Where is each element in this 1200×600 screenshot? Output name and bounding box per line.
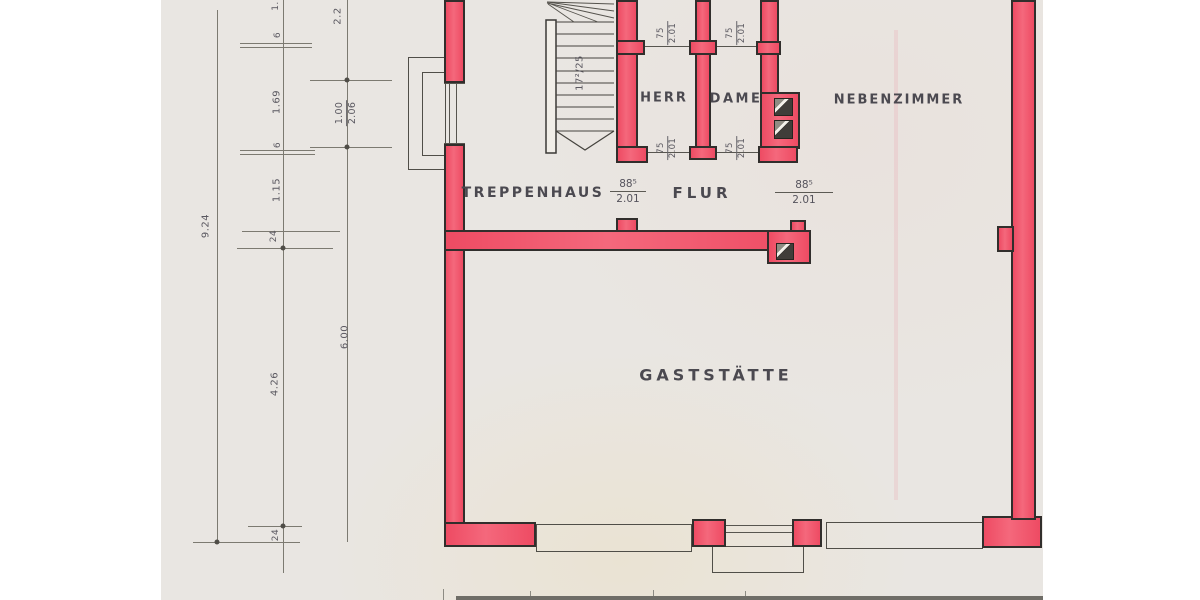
wall-right bbox=[1011, 0, 1036, 520]
dim-dot-c-147 bbox=[345, 145, 350, 150]
entrance-porch-step bbox=[712, 546, 804, 573]
bottom-dim-tick-1 bbox=[443, 589, 444, 600]
wall-stairwell-jamb-top bbox=[616, 40, 645, 55]
dim-b-top-cut: 1. bbox=[271, 1, 281, 11]
wall-herr-dame-jamb-bottom bbox=[689, 146, 717, 160]
door-dim-num: 75 bbox=[726, 27, 736, 38]
room-label-dame: DAME bbox=[710, 92, 763, 107]
dim-dot-b-248 bbox=[281, 246, 286, 251]
dim-tick-a-bottom bbox=[193, 542, 300, 543]
door-dim-75-4: 75 2.01 bbox=[726, 136, 748, 160]
dim-seg-115: 1.15 bbox=[272, 178, 283, 202]
flue-square-1 bbox=[774, 98, 793, 116]
dim-seg-6a: 6 bbox=[273, 32, 283, 38]
door-line-herr-top bbox=[645, 46, 689, 47]
entrance-threshold-line2 bbox=[726, 532, 792, 533]
corridor-door-jamb-1 bbox=[616, 218, 638, 232]
dim-tick-c1 bbox=[310, 80, 392, 81]
dim-seg-24a: 24 bbox=[269, 230, 279, 242]
window-left-cap-top bbox=[444, 83, 465, 84]
wall-dame-neben-jamb-top bbox=[756, 41, 781, 55]
floor-plan-scan: 17²/25 TREPPENHAUS FLUR HERR DAME NEBENZ… bbox=[0, 0, 1200, 600]
room-label-herr: HERR bbox=[640, 91, 688, 106]
window-left-sill-inner bbox=[422, 72, 446, 156]
dim-seg-24b: 24 bbox=[271, 529, 281, 541]
flue-square-2 bbox=[774, 120, 793, 139]
door-dim-75-3: 75 2.01 bbox=[657, 136, 679, 160]
scan-margin-left bbox=[0, 0, 161, 600]
dim-seg-600: 6.00 bbox=[340, 325, 351, 349]
door-dim-num: 88⁵ bbox=[775, 179, 833, 192]
dim-tick-b4 bbox=[248, 526, 302, 527]
wall-corridor bbox=[444, 230, 806, 251]
door-dim-den: 2.01 bbox=[736, 21, 748, 45]
dim-line-b bbox=[283, 0, 284, 573]
door-dim-885-1: 88⁵ 2.01 bbox=[610, 178, 646, 205]
dim-dot-a-542 bbox=[215, 540, 220, 545]
door-dim-75-2: 75 2.01 bbox=[726, 21, 748, 45]
door-dim-num: 75 bbox=[657, 27, 667, 38]
dim-c-top: 2.2 bbox=[333, 7, 344, 24]
door-dim-den: 2.01 bbox=[736, 136, 748, 160]
dim-tick-b2b bbox=[240, 154, 315, 155]
dim-dot-b-526 bbox=[281, 524, 286, 529]
door-dim-den: 2.01 bbox=[667, 136, 679, 160]
wall-bottom-pier-2 bbox=[792, 519, 822, 547]
wall-right-interior-pier bbox=[997, 226, 1014, 252]
dim-tick-b3a bbox=[242, 231, 340, 232]
scan-margin-right bbox=[1043, 0, 1200, 600]
door-dim-num: 88⁵ bbox=[610, 178, 646, 191]
wall-herr-dame bbox=[695, 0, 711, 159]
door-line-dame-top bbox=[717, 46, 756, 47]
dim-tick-b2a bbox=[240, 150, 315, 151]
wall-herr-dame-jamb-top bbox=[689, 40, 717, 55]
dim-window-fraction: 1.00 2.06 bbox=[335, 100, 359, 126]
scan-edge-band bbox=[456, 596, 1044, 600]
wall-left-upper bbox=[444, 0, 465, 83]
window-bottom-2 bbox=[826, 522, 983, 549]
door-dim-num: 75 bbox=[726, 142, 736, 153]
room-label-flur: FLUR bbox=[672, 184, 731, 202]
stair-direction-arrow bbox=[556, 131, 614, 150]
window-left-frame-line bbox=[449, 83, 450, 144]
dim-tick-b1b bbox=[240, 47, 312, 48]
room-label-nebenzimmer: NEBENZIMMER bbox=[834, 93, 964, 108]
dim-tick-b1a bbox=[240, 43, 312, 44]
door-dim-885-2: 88⁵ 2.01 bbox=[775, 179, 833, 206]
flue-square-corridor bbox=[776, 243, 794, 260]
window-left-frame-line2 bbox=[456, 83, 457, 144]
door-dim-den: 2.01 bbox=[667, 21, 679, 45]
door-dim-num: 75 bbox=[657, 142, 667, 153]
dim-tick-c2 bbox=[310, 147, 392, 148]
dim-seg-6b: 6 bbox=[273, 142, 283, 148]
wall-dame-neben-jamb-bottom bbox=[758, 146, 798, 163]
door-dim-den: 2.01 bbox=[775, 192, 833, 207]
wall-stairwell-jamb-bottom bbox=[616, 146, 648, 163]
dim-seg-426: 4.26 bbox=[270, 372, 281, 396]
wall-stairwell bbox=[616, 0, 638, 163]
wall-bottom-right-corner bbox=[982, 516, 1042, 548]
dim-seg-169: 1.69 bbox=[272, 90, 283, 114]
wall-bottom-left bbox=[444, 522, 536, 547]
door-dim-den: 2.01 bbox=[610, 191, 646, 206]
wall-bottom-pier-1 bbox=[692, 519, 726, 547]
room-label-gaststaette: GASTSTÄTTE bbox=[639, 366, 792, 385]
door-dim-75-1: 75 2.01 bbox=[657, 21, 679, 45]
dim-window-den: 2.06 bbox=[346, 100, 359, 126]
window-bottom-1 bbox=[536, 524, 692, 552]
wall-left-lower bbox=[444, 144, 465, 547]
dim-total-height: 9.24 bbox=[201, 214, 212, 238]
dim-line-a bbox=[217, 10, 218, 542]
entrance-threshold-line1 bbox=[726, 525, 792, 526]
stair-rise-run-label: 17²/25 bbox=[575, 55, 586, 91]
room-label-treppenhaus: TREPPENHAUS bbox=[462, 185, 605, 201]
dim-dot-c-80 bbox=[345, 78, 350, 83]
dim-window-num: 1.00 bbox=[335, 102, 346, 124]
